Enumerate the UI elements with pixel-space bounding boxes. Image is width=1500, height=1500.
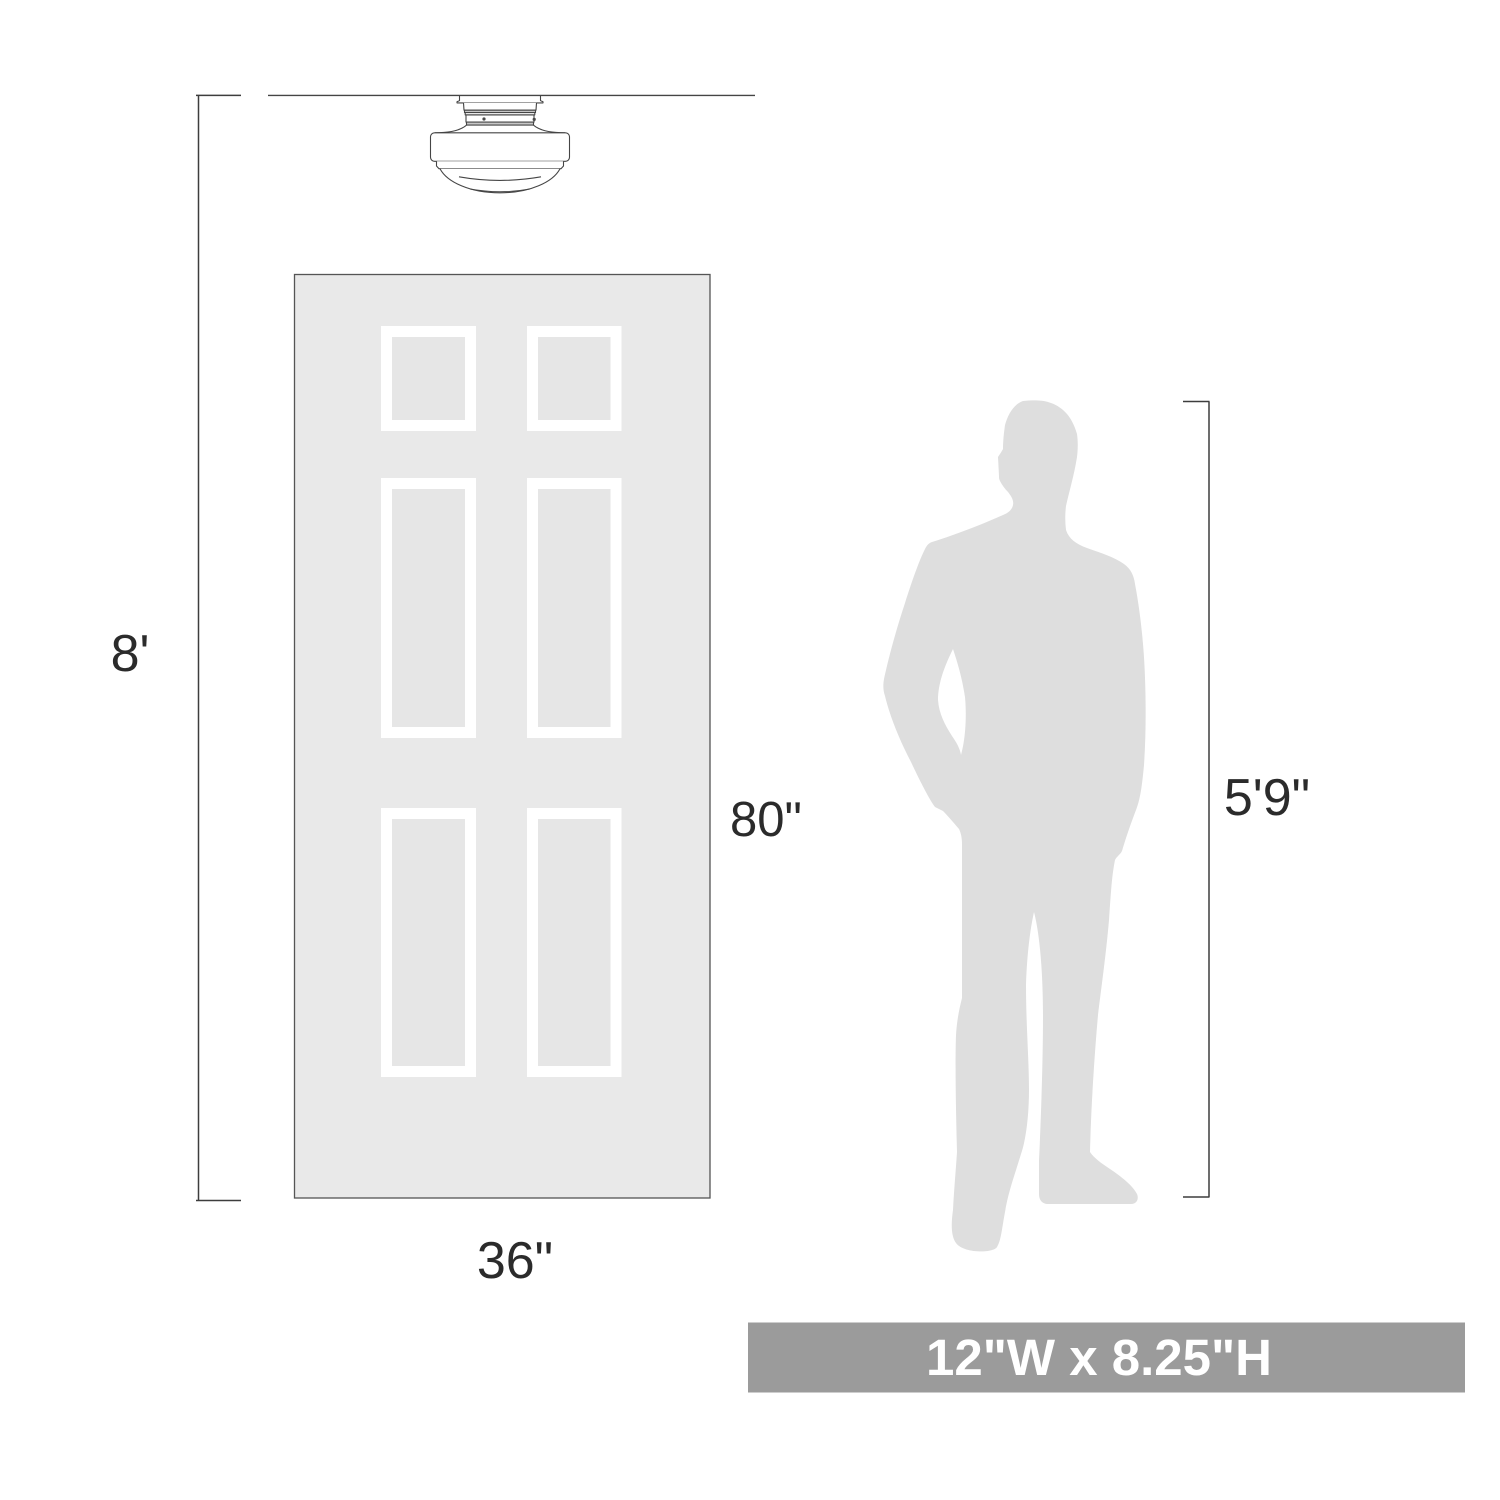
svg-text:36": 36" — [477, 1232, 553, 1290]
svg-text:8': 8' — [111, 625, 150, 683]
svg-text:12"W x 8.25"H: 12"W x 8.25"H — [926, 1329, 1272, 1386]
svg-text:5'9": 5'9" — [1224, 769, 1310, 827]
svg-text:80": 80" — [730, 793, 802, 847]
